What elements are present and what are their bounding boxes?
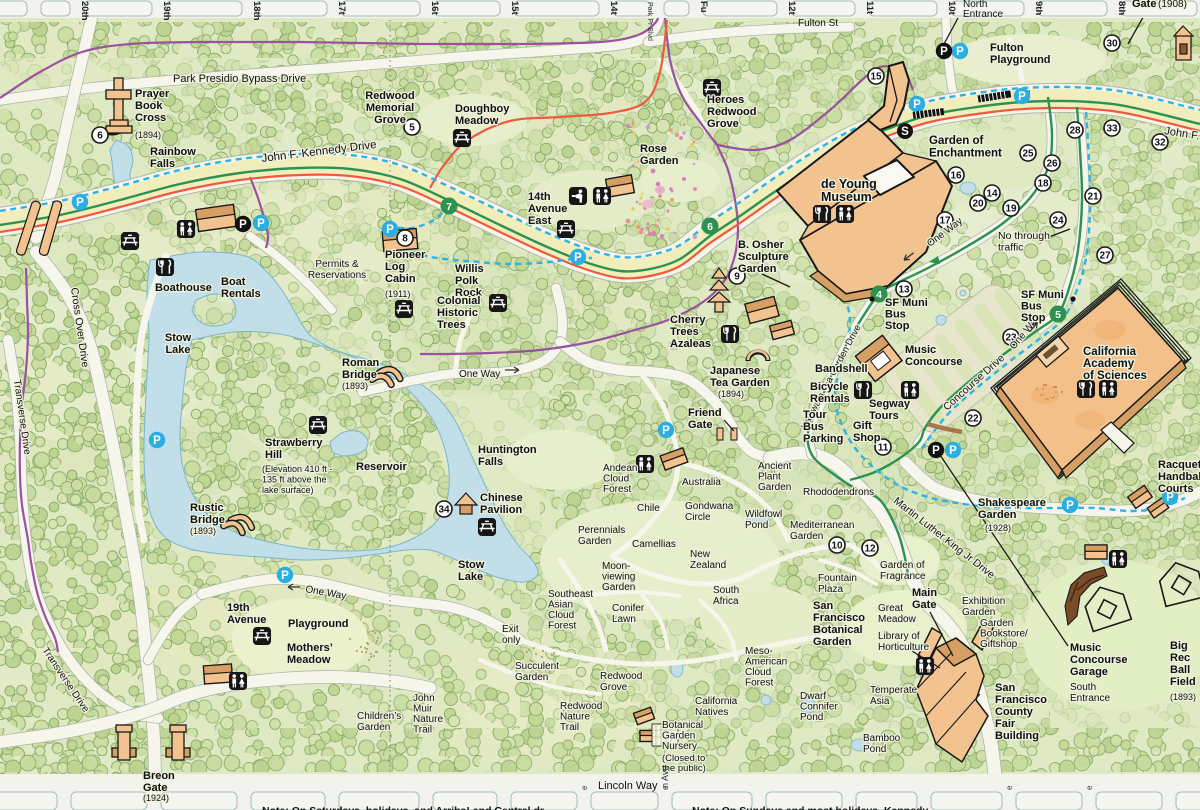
- svg-text:e: e: [580, 785, 589, 790]
- svg-text:Playground: Playground: [288, 618, 349, 630]
- svg-text:P: P: [932, 445, 940, 457]
- svg-text:Park Pr Blvd: Park Pr Blvd: [646, 2, 653, 41]
- svg-text:One Way: One Way: [459, 369, 500, 380]
- svg-text:21: 21: [1087, 192, 1099, 203]
- svg-text:StowLake: StowLake: [165, 332, 192, 356]
- svg-text:27: 27: [1099, 251, 1111, 262]
- svg-text:17t: 17t: [336, 1, 347, 16]
- svg-text:(1894): (1894): [135, 130, 161, 140]
- svg-text:e: e: [1085, 785, 1094, 790]
- svg-text:34: 34: [438, 505, 450, 516]
- svg-text:P: P: [386, 224, 394, 236]
- svg-text:5: 5: [1055, 309, 1061, 321]
- svg-text:(1924): (1924): [143, 793, 169, 803]
- svg-text:20: 20: [972, 199, 984, 210]
- svg-text:30: 30: [1106, 39, 1118, 50]
- svg-text:12: 12: [864, 544, 876, 555]
- svg-text:Reservoir: Reservoir: [356, 461, 407, 473]
- svg-text:P: P: [574, 252, 582, 264]
- svg-text:n Ave: n Ave: [660, 766, 670, 788]
- svg-text:BicycleRentals: BicycleRentals: [810, 381, 850, 405]
- svg-text:Camellias: Camellias: [632, 539, 676, 550]
- svg-text:(1928): (1928): [985, 523, 1011, 533]
- svg-text:7: 7: [446, 201, 452, 213]
- svg-text:Australia: Australia: [682, 477, 721, 488]
- svg-text:22: 22: [967, 414, 979, 425]
- svg-text:P: P: [153, 435, 161, 447]
- svg-text:Bandshell: Bandshell: [815, 363, 868, 375]
- svg-text:P: P: [239, 219, 247, 231]
- svg-text:32: 32: [1154, 138, 1166, 149]
- svg-text:P: P: [76, 197, 84, 209]
- svg-text:P: P: [281, 570, 289, 582]
- svg-text:Lincoln Way: Lincoln Way: [598, 780, 658, 792]
- svg-text:Chile: Chile: [637, 503, 660, 514]
- svg-text:20th: 20th: [79, 1, 90, 21]
- svg-text:6: 6: [97, 131, 103, 142]
- svg-text:8th: 8th: [1116, 1, 1127, 15]
- svg-text:19th: 19th: [161, 1, 172, 21]
- svg-text:S: S: [901, 126, 909, 138]
- svg-text:16t: 16t: [429, 1, 440, 16]
- svg-text:18: 18: [1037, 179, 1049, 190]
- svg-text:(1893): (1893): [342, 381, 368, 391]
- svg-text:Mothers’Meadow: Mothers’Meadow: [287, 642, 333, 666]
- svg-text:Fu: Fu: [698, 1, 709, 13]
- svg-text:14: 14: [986, 189, 998, 200]
- svg-text:(1908): (1908): [1158, 0, 1187, 10]
- svg-text:Garden ofFragrance: Garden ofFragrance: [880, 560, 926, 582]
- svg-text:Note: On Sundays and most holi: Note: On Sundays and most holidays, Kenn…: [692, 805, 928, 810]
- svg-text:8: 8: [402, 234, 408, 245]
- svg-text:Boathouse: Boathouse: [155, 282, 212, 294]
- svg-text:StowLake: StowLake: [458, 559, 485, 583]
- svg-text:24: 24: [1052, 216, 1064, 227]
- svg-text:11: 11: [878, 443, 889, 454]
- svg-text:10t: 10t: [946, 1, 957, 16]
- svg-text:18th: 18th: [251, 1, 262, 21]
- svg-text:12t: 12t: [786, 1, 797, 16]
- svg-text:P: P: [956, 46, 964, 58]
- svg-text:15: 15: [870, 72, 882, 83]
- svg-text:(1893): (1893): [190, 526, 216, 536]
- svg-text:14t: 14t: [608, 1, 619, 16]
- svg-text:(1894): (1894): [718, 389, 744, 399]
- svg-text:Exitonly: Exitonly: [502, 624, 520, 646]
- svg-text:Park Presidio Bypass Drive: Park Presidio Bypass Drive: [173, 73, 306, 85]
- svg-text:de YoungMuseum: de YoungMuseum: [821, 177, 877, 204]
- svg-text:15t: 15t: [509, 1, 520, 16]
- svg-text:Moon-viewingGarden: Moon-viewingGarden: [602, 561, 635, 593]
- svg-text:(1893): (1893): [1170, 692, 1196, 702]
- svg-text:Rhododendrons: Rhododendrons: [803, 487, 874, 498]
- svg-text:RusticBridge: RusticBridge: [190, 502, 225, 526]
- svg-text:P: P: [1066, 500, 1074, 512]
- svg-text:28: 28: [1069, 126, 1081, 137]
- svg-text:16: 16: [950, 171, 962, 182]
- svg-text:ChinesePavilion: ChinesePavilion: [480, 492, 523, 516]
- svg-text:Note: On Saturdays, holidays,: Note: On Saturdays, holidays, and Arriba…: [262, 805, 544, 810]
- svg-text:SouthAfrica: SouthAfrica: [713, 585, 739, 607]
- svg-text:P: P: [257, 218, 265, 230]
- svg-text:26: 26: [1046, 159, 1058, 170]
- svg-text:P: P: [913, 99, 921, 111]
- svg-text:13: 13: [898, 285, 910, 296]
- svg-text:Gate: Gate: [1132, 0, 1156, 10]
- svg-text:5: 5: [409, 123, 415, 134]
- svg-text:9th: 9th: [1033, 1, 1044, 15]
- svg-text:4: 4: [876, 289, 882, 301]
- svg-text:P: P: [940, 46, 948, 58]
- svg-text:(1911): (1911): [385, 289, 410, 299]
- svg-text:P: P: [949, 445, 957, 457]
- svg-text:11t: 11t: [864, 1, 875, 15]
- svg-text:33: 33: [1106, 124, 1118, 135]
- svg-text:MainGate: MainGate: [912, 587, 937, 611]
- svg-text:Fulton St: Fulton St: [798, 18, 838, 29]
- svg-text:25: 25: [1022, 149, 1034, 160]
- svg-text:P: P: [662, 425, 670, 437]
- svg-text:RomanBridge: RomanBridge: [342, 357, 380, 381]
- svg-text:10: 10: [831, 541, 843, 552]
- svg-text:P: P: [1018, 91, 1026, 103]
- svg-text:Permits &Reservations: Permits &Reservations: [308, 259, 366, 281]
- svg-text:6: 6: [707, 221, 713, 233]
- svg-text:e: e: [1005, 785, 1014, 790]
- svg-text:19: 19: [1005, 204, 1017, 215]
